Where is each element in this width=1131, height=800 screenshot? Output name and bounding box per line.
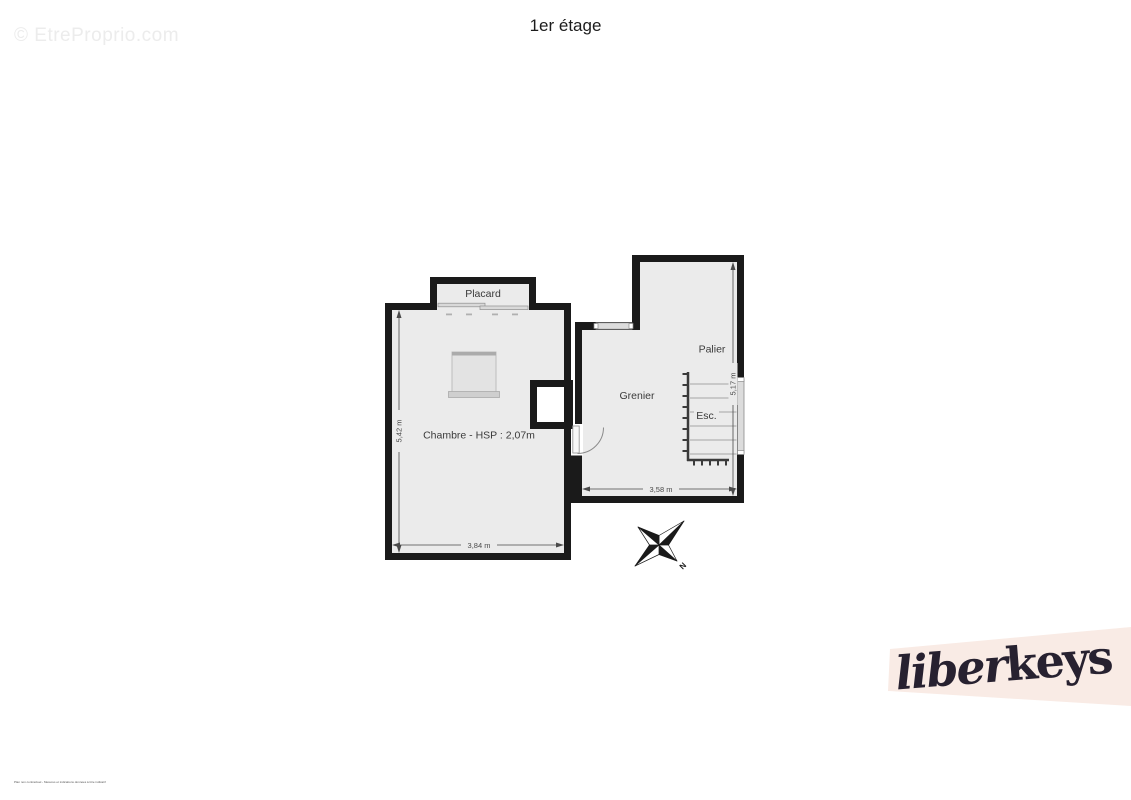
dim-label-chambre-width: 3,84 m	[468, 541, 491, 550]
wall-merge-below-door	[571, 456, 576, 504]
grenier-top-window-cap-left	[594, 324, 598, 329]
room-label-stairs: Esc.	[696, 410, 716, 422]
dim-label-grenier-height: 5,17 m	[729, 373, 738, 396]
grenier-right-window-cap-bottom	[738, 451, 745, 455]
roof-window-top-bar	[452, 352, 496, 356]
wall-notch-void	[537, 387, 564, 422]
placard-sliding-door-panel	[438, 303, 485, 307]
compass-rose	[635, 521, 684, 566]
plan-disclaimer: Plan non contractuel - Mesures et indica…	[14, 780, 106, 784]
logo-wordmark-script: liber	[893, 638, 1008, 701]
dim-label-chambre-height: 5,42 m	[395, 420, 404, 443]
room-label-placard: Placard	[465, 288, 501, 300]
room-label-grenier: Grenier	[619, 390, 655, 402]
roof-window-bottom-bar	[449, 392, 500, 398]
logo-wordmark-bold: keys	[1003, 630, 1113, 692]
tiny-measure-mark	[446, 314, 452, 316]
grenier-top-window	[596, 323, 632, 329]
grenier-right-window	[738, 379, 745, 453]
floorplan-drawing: 5,42 m 3,84 m 5,17 m 3,58 m Placard Cham…	[380, 248, 760, 580]
grenier-right-window-cap-top	[738, 378, 745, 382]
liberkeys-logo: liberkeys	[869, 616, 1131, 731]
compass-north-label: N	[677, 560, 688, 571]
tiny-measure-mark	[512, 314, 518, 316]
compass-arm	[659, 521, 684, 545]
roof-window	[452, 352, 496, 395]
placard-sliding-door-panel	[480, 306, 528, 310]
dim-label-grenier-width: 3,58 m	[650, 485, 673, 494]
page-title: 1er étage	[0, 16, 1131, 36]
room-label-palier: Palier	[699, 344, 726, 356]
wall-gap	[571, 322, 575, 380]
grenier-top-window-cap-right	[629, 324, 633, 329]
tiny-measure-mark	[466, 314, 472, 316]
tiny-measure-mark	[492, 314, 498, 316]
room-label-chambre: Chambre - HSP : 2,07m	[423, 430, 535, 442]
door-leaf	[573, 426, 579, 453]
